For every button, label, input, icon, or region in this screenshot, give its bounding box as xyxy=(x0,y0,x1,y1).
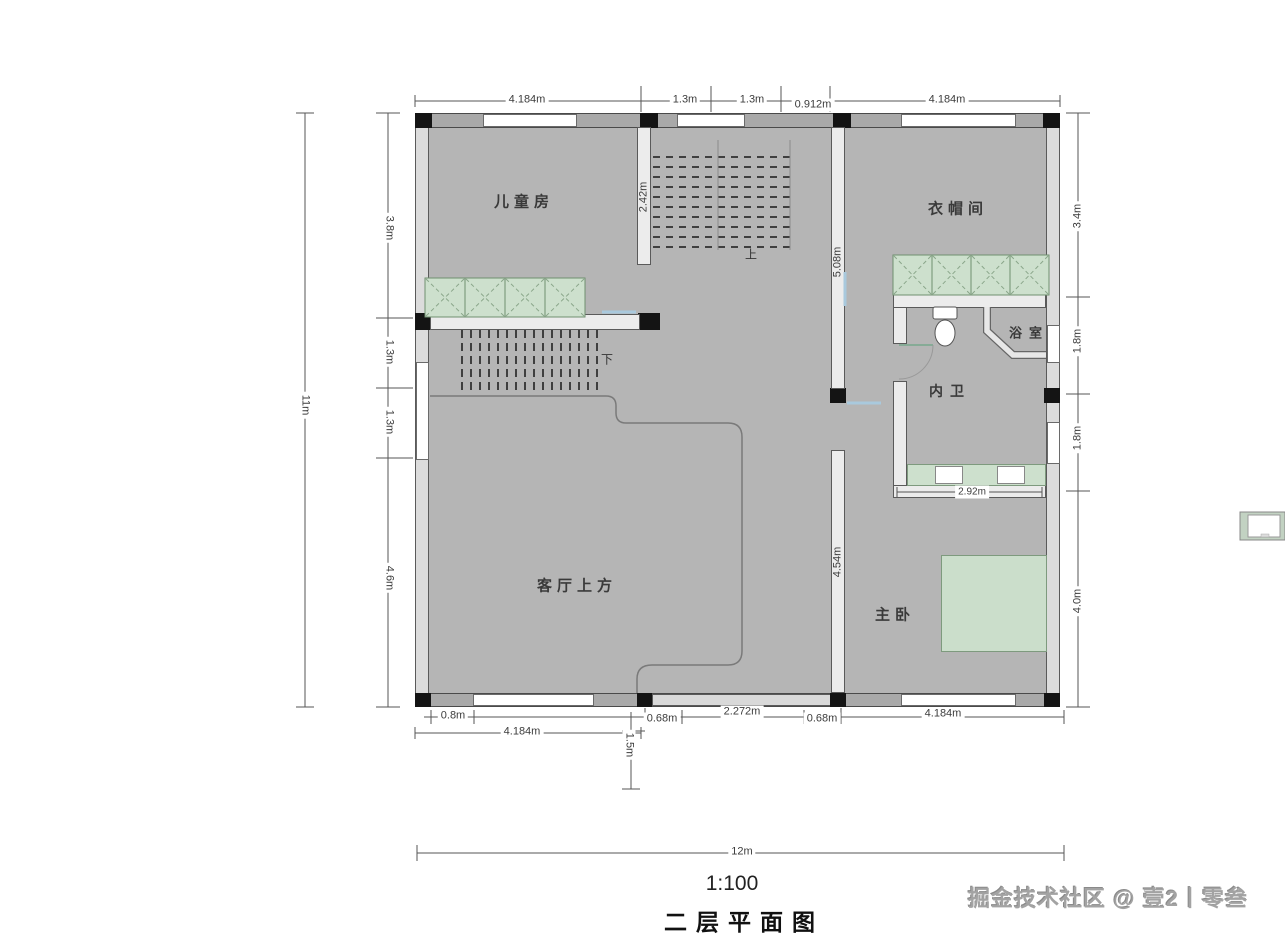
dim-bottom-1: 0.8m xyxy=(438,710,468,723)
dim-bottom-bay: 4.184m xyxy=(501,726,544,739)
room-label-kids: 儿童房 xyxy=(494,191,554,212)
dim-right-4: 4.0m xyxy=(1072,586,1085,616)
side-fixture xyxy=(1240,512,1285,540)
dim-bottom-offset: 1.5m xyxy=(623,730,636,760)
dim-top-3: 1.3m xyxy=(737,94,767,107)
dim-left-overall: 11m xyxy=(299,392,312,419)
room-label-bath: 浴室 xyxy=(1009,323,1049,342)
dim-top-4: 0.912m xyxy=(792,99,835,112)
dim-vanity: 2.92m xyxy=(955,486,989,499)
page-title: 二层平面图 xyxy=(664,903,824,936)
room-label-master: 主卧 xyxy=(875,604,915,625)
wardrobe-cloak xyxy=(893,255,1049,295)
dim-hall-wall: 5.08m xyxy=(832,244,845,281)
dim-left-3: 1.3m xyxy=(383,407,396,437)
dim-bottom-2: 0.68m xyxy=(644,713,681,726)
stair-up-label: 上 xyxy=(745,246,757,263)
plan-linework xyxy=(0,0,1285,936)
stair-down-label: 下 xyxy=(601,351,613,368)
dim-top-1: 4.184m xyxy=(506,94,549,107)
watermark: 掘金技术社区 @ 壹2丨零叁 xyxy=(968,881,1248,913)
dim-lower-wall: 4.54m xyxy=(832,544,845,581)
glass-accents xyxy=(602,272,881,403)
dim-right-3: 1.8m xyxy=(1072,423,1085,453)
wardrobe-kids xyxy=(425,278,585,317)
dim-bottom-overall: 12m xyxy=(728,846,755,859)
dim-left-4: 4.6m xyxy=(383,563,396,593)
scale-label: 1:100 xyxy=(706,872,759,896)
toilet xyxy=(933,307,957,346)
dim-top-2: 1.3m xyxy=(670,94,700,107)
dim-bottom-4: 0.68m xyxy=(804,713,841,726)
dim-top-5: 4.184m xyxy=(926,94,969,107)
dim-stair-width: 2.42m xyxy=(638,179,651,216)
dim-bottom-5: 4.184m xyxy=(922,708,965,721)
dim-bottom-3: 2.272m xyxy=(721,706,764,719)
door-swing-arc xyxy=(899,345,933,379)
room-label-ensuite: 内卫 xyxy=(929,381,971,401)
dim-right-1: 3.4m xyxy=(1072,201,1085,231)
room-label-void: 客厅上方 xyxy=(537,575,617,596)
floor-plan: 儿童房 衣帽间 浴室 内卫 客厅上方 主卧 上 下 4.184m 1.3m 1.… xyxy=(0,0,1285,936)
stairwell-lines xyxy=(718,140,790,250)
void-boundary xyxy=(430,396,742,693)
dim-left-1: 3.8m xyxy=(383,213,396,243)
dim-right-2: 1.8m xyxy=(1072,326,1085,356)
room-label-cloak: 衣帽间 xyxy=(928,198,988,219)
dim-left-2: 1.3m xyxy=(383,337,396,367)
